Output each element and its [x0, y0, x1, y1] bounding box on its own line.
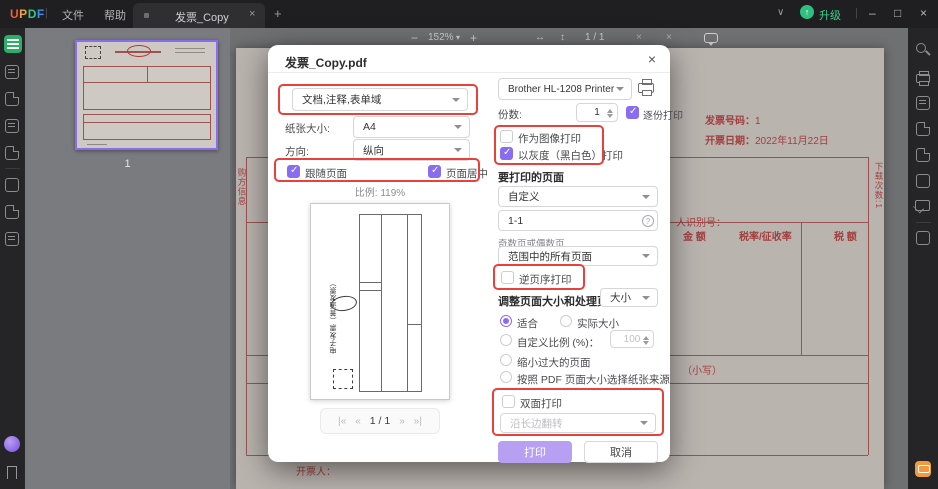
zoom-in-icon[interactable]: +: [470, 30, 477, 46]
scale-indicator: 比例: 119%: [268, 184, 492, 199]
paper-source-radio[interactable]: [500, 371, 512, 383]
caret-down-icon: [454, 148, 462, 152]
reverse-order-label: 逆页序打印: [519, 272, 572, 287]
invoice-date-value: 2022年11月22日: [755, 136, 829, 147]
email-icon[interactable]: [915, 200, 930, 211]
download-count-vertical: 下载次数:1: [873, 162, 885, 209]
sizing-mode-value: 大小: [610, 290, 631, 305]
updf-app-window: UPDF | 文件 帮助 发票_Copy × + ∨ ↑ 升级 | – □ ×: [0, 0, 938, 489]
page-range-mode-select[interactable]: 自定义: [498, 186, 658, 207]
custom-scale-stepper[interactable]: 100: [610, 330, 654, 348]
thumb-stamp-box: [85, 46, 101, 59]
orientation-select[interactable]: 纵向: [353, 139, 470, 161]
duplex-label: 双面打印: [520, 396, 562, 411]
menu-help[interactable]: 帮助: [104, 7, 126, 23]
thumbnail-page-number: 1: [25, 158, 230, 170]
page-prev-icon[interactable]: «: [355, 416, 361, 427]
bookmark-icon[interactable]: [7, 466, 17, 479]
collate-checkbox[interactable]: [626, 106, 639, 119]
caret-down-icon: [642, 254, 650, 258]
actual-size-label: 实际大小: [577, 316, 619, 331]
fit-radio[interactable]: [500, 315, 512, 327]
shrink-oversize-radio[interactable]: [500, 354, 512, 366]
buyer-side-vertical: 购方信息: [236, 168, 248, 206]
page-range-input[interactable]: [498, 210, 658, 231]
custom-scale-radio[interactable]: [500, 334, 512, 346]
pages-section-title: 要打印的页面: [498, 169, 564, 185]
crop-tool-icon[interactable]: [5, 232, 19, 246]
page-last-icon[interactable]: »|: [414, 416, 422, 427]
center-page-checkbox[interactable]: [428, 165, 441, 178]
fit-label: 适合: [517, 316, 538, 331]
custom-scale-label: 自定义比例 (%)：: [517, 335, 599, 350]
fit-width-icon[interactable]: ↔: [535, 30, 545, 46]
col-amount: 金 额: [683, 228, 706, 243]
stepper-arrows-icon: [643, 333, 649, 348]
printer-properties-icon[interactable]: [638, 83, 654, 93]
comment-bubble-icon[interactable]: [704, 33, 718, 43]
invoice-number-label: 发票号码：1: [705, 112, 761, 127]
cancel-button[interactable]: 取消: [584, 441, 658, 463]
rail-divider-right: [916, 222, 931, 223]
print-content-value: 文档,注释,表单域: [302, 92, 381, 107]
form-tool-icon[interactable]: [5, 119, 19, 133]
caret-down-icon: [642, 195, 650, 199]
chevron-down-icon[interactable]: ∨: [777, 7, 784, 18]
custom-scale-value: 100: [624, 334, 641, 345]
menu-file[interactable]: 文件: [62, 7, 84, 23]
logo-letter-f: F: [37, 7, 45, 21]
preview-stamp-box: [333, 369, 353, 389]
print-as-image-checkbox[interactable]: [500, 130, 513, 143]
printer-name: Brother HL-1208 Printer: [508, 84, 614, 95]
duplex-mode-select[interactable]: 沿长边翻转: [500, 413, 656, 433]
sign-tool-icon[interactable]: [5, 178, 19, 192]
export-icon[interactable]: [916, 96, 930, 110]
grayscale-checkbox[interactable]: [500, 147, 513, 160]
caret-down-icon: [616, 87, 624, 91]
sizing-mode-select[interactable]: 大小: [600, 288, 658, 307]
right-toolbar-rail: [908, 28, 938, 489]
copies-value: 1: [594, 107, 600, 118]
duplex-mode-value: 沿长边翻转: [510, 416, 563, 431]
snapshot-icon[interactable]: [916, 231, 930, 245]
titlebar: UPDF | 文件 帮助 发票_Copy × + ∨ ↑ 升级 | – □ ×: [0, 0, 938, 28]
odd-even-value: 范围中的所有页面: [508, 249, 592, 264]
issuer-label: 开票人：: [296, 463, 336, 478]
page-range-mode-value: 自定义: [508, 189, 540, 204]
page-next-icon[interactable]: »: [399, 416, 405, 427]
copies-stepper[interactable]: 1: [576, 103, 618, 122]
follow-page-checkbox[interactable]: [287, 165, 300, 178]
titlebar-divider-2: |: [855, 7, 858, 19]
titlebar-divider: |: [45, 7, 48, 19]
organize-pages-tool-icon[interactable]: [5, 146, 19, 160]
document-tab[interactable]: 发票_Copy ×: [133, 3, 265, 28]
comment-tool-icon[interactable]: [5, 65, 19, 79]
buyer-id-label: 人识别号：: [676, 214, 726, 229]
dialog-close-icon[interactable]: ×: [648, 51, 656, 67]
paper-size-label: 纸张大小:: [285, 121, 330, 136]
print-dialog: 发票_Copy.pdf × 文档,注释,表单域 纸张大小: A4 方向: 纵向 …: [268, 45, 670, 462]
invoice-number-value: 1: [755, 116, 761, 127]
center-page-label: 页面居中: [446, 166, 488, 181]
logo-letter-d: D: [28, 7, 37, 21]
page-current: 1 / 1: [370, 415, 390, 427]
toolbar-misc-icon-2[interactable]: ×: [666, 30, 672, 46]
dialog-divider: [268, 72, 670, 73]
restore-icon[interactable]: □: [894, 6, 901, 20]
print-as-image-label: 作为图像打印: [518, 131, 581, 146]
share-icon[interactable]: [916, 174, 930, 188]
updf-logo: UPDF: [10, 7, 45, 21]
fit-page-icon[interactable]: ↕: [560, 30, 565, 46]
paper-size-value: A4: [363, 121, 376, 133]
col-rate: 税率/征收率: [739, 228, 792, 243]
print-button[interactable]: 打印: [498, 441, 572, 463]
shrink-oversize-label: 缩小过大的页面: [517, 355, 591, 370]
new-tab-icon[interactable]: +: [274, 6, 282, 21]
edit-pdf-tool-icon[interactable]: [5, 92, 19, 106]
feedback-icon[interactable]: [915, 461, 931, 477]
logo-letter-u: U: [10, 7, 19, 21]
window-close-icon[interactable]: ×: [920, 6, 927, 20]
zoom-level[interactable]: 152%: [428, 30, 454, 46]
tab-close-icon[interactable]: ×: [249, 8, 255, 20]
caret-down-icon: [454, 125, 462, 129]
dialog-title: 发票_Copy.pdf: [285, 54, 367, 71]
upgrade-button[interactable]: 升级: [819, 7, 841, 23]
paper-source-label: 按照 PDF 页面大小选择纸张来源: [517, 372, 670, 387]
convert-icon[interactable]: [916, 122, 930, 136]
rail-divider: [5, 168, 20, 169]
collate-label: 逐份打印: [643, 107, 683, 122]
printer-select[interactable]: Brother HL-1208 Printer: [498, 78, 632, 100]
copies-label: 份数:: [498, 107, 522, 122]
protect-icon[interactable]: [916, 148, 930, 162]
page-first-icon[interactable]: |«: [338, 416, 346, 427]
upgrade-icon[interactable]: ↑: [800, 5, 814, 19]
left-toolbar-rail: [0, 28, 25, 489]
small-amount-label: （小写）: [682, 362, 722, 377]
range-help-icon: ?: [642, 215, 654, 227]
orientation-label: 方向:: [285, 144, 309, 159]
search-icon[interactable]: [916, 43, 926, 53]
zoom-caret-icon[interactable]: ▾: [456, 30, 460, 46]
thumb-circle-annotation: [127, 45, 151, 57]
caret-down-icon: [642, 296, 650, 300]
caret-down-icon: [640, 421, 648, 425]
toolbar-misc-icon-1[interactable]: ×: [636, 30, 642, 46]
print-icon[interactable]: [916, 74, 930, 83]
preview-pagination: |« « 1 / 1 » »|: [320, 408, 440, 434]
logo-letter-p: P: [19, 7, 28, 21]
print-preview-page: 电子发票（普通发票）: [310, 203, 450, 400]
page-indicator: 1 / 1: [585, 30, 604, 46]
odd-even-select[interactable]: 范围中的所有页面: [498, 246, 658, 266]
orientation-value: 纵向: [363, 143, 384, 158]
paper-size-select[interactable]: A4: [353, 116, 470, 138]
ai-assistant-icon[interactable]: [4, 436, 20, 452]
print-content-select[interactable]: 文档,注释,表单域: [292, 88, 468, 111]
zoom-out-icon[interactable]: −: [411, 30, 418, 46]
tab-icon: [144, 13, 149, 18]
ocr-tool-icon[interactable]: [5, 205, 19, 219]
col-tax: 税 额: [834, 228, 857, 243]
stepper-arrows-icon[interactable]: [607, 106, 613, 121]
thumbnails-tool-icon-active[interactable]: [4, 35, 22, 53]
thumbnail-panel: 1: [25, 28, 230, 489]
minimize-icon[interactable]: –: [869, 6, 876, 20]
actual-size-radio[interactable]: [560, 315, 572, 327]
follow-page-label: 跟随页面: [305, 166, 347, 181]
invoice-date-label: 开票日期：2022年11月22日: [705, 132, 829, 147]
grayscale-label: 以灰度（黑白色）打印: [518, 148, 623, 163]
page-thumbnail[interactable]: [75, 40, 218, 150]
reverse-order-checkbox[interactable]: [501, 271, 514, 284]
caret-down-icon: [452, 98, 460, 102]
duplex-checkbox[interactable]: [502, 395, 515, 408]
tab-title: 发票_Copy: [175, 9, 229, 25]
